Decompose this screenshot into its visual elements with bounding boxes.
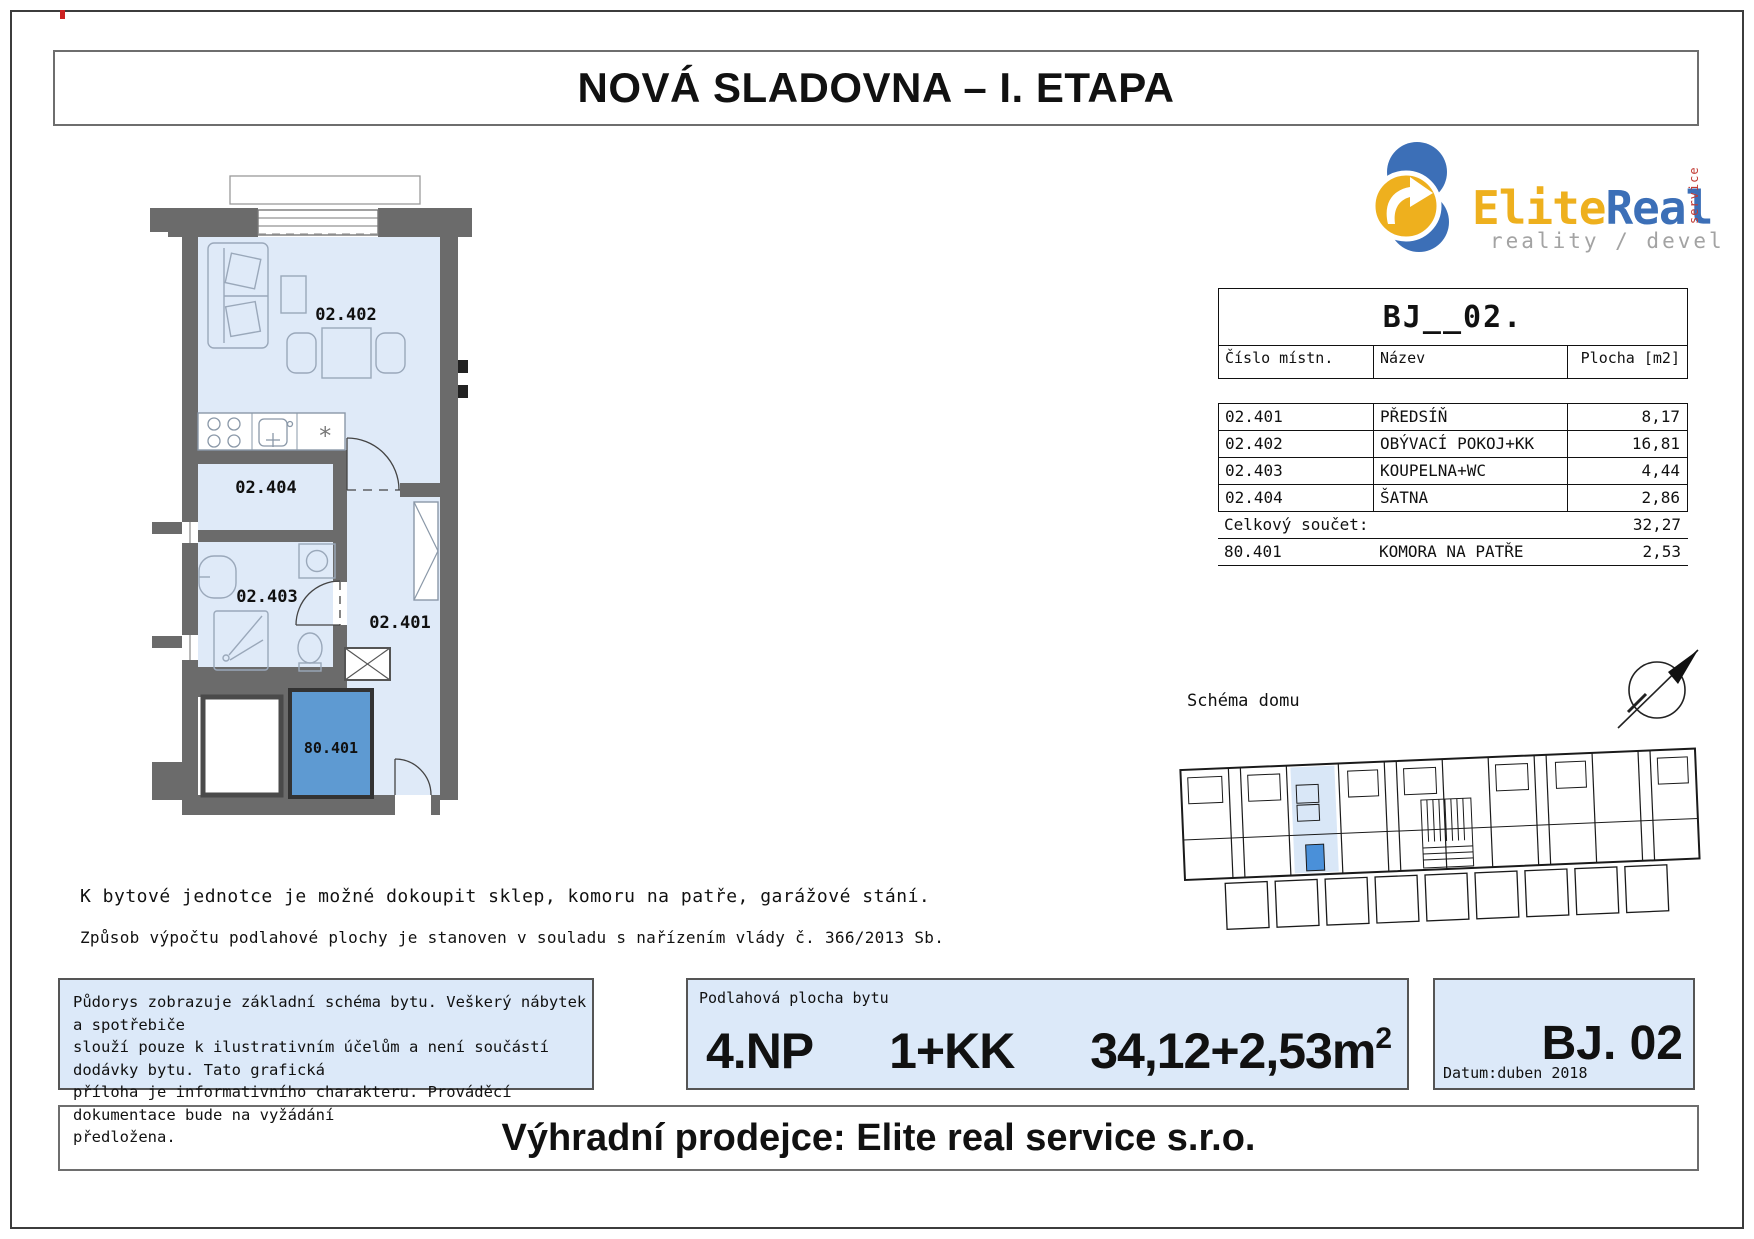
room-name: PŘEDSÍŇ — [1374, 404, 1568, 430]
disclaimer-line: Půdorys zobrazuje základní schéma bytu. … — [73, 991, 592, 1036]
summary-label: Podlahová plocha bytu — [699, 989, 889, 1007]
table-row: 02.404 ŠATNA 2,86 — [1218, 485, 1688, 512]
room-area: 2,86 — [1568, 485, 1687, 511]
room-number: 02.401 — [1219, 404, 1374, 430]
print-mark — [60, 10, 65, 19]
table-row: 02.401 PŘEDSÍŇ 8,17 — [1218, 404, 1688, 431]
logo-word-elite: Elite — [1472, 181, 1605, 235]
page-title-box: NOVÁ SLADOVNA – I. ETAPA — [53, 50, 1699, 126]
table-total-row: Celkový součet: 32,27 — [1218, 512, 1688, 539]
col-name: Název — [1374, 346, 1568, 378]
property-sheet: NOVÁ SLADOVNA – I. ETAPA EliteReal servi… — [0, 0, 1754, 1239]
highlighted-storage — [1306, 844, 1325, 871]
room-number: 80.401 — [1218, 539, 1373, 565]
logo-tagline: reality / developer — [1490, 229, 1720, 253]
layout-value: 1+KK — [889, 1026, 1014, 1076]
note-regulation: Způsob výpočtu podlahové plochy je stano… — [80, 928, 944, 947]
room-area: 4,44 — [1568, 458, 1687, 484]
room-label-hall: 02.401 — [369, 613, 430, 633]
disclaimer-line: slouží pouze k ilustrativním účelům a ne… — [73, 1036, 592, 1081]
unit-table-header: Číslo místn. Název Plocha [m2] — [1218, 346, 1688, 379]
kitchen-counter: * — [198, 413, 345, 450]
room-area: 16,81 — [1568, 431, 1687, 457]
room-number: 02.402 — [1219, 431, 1374, 457]
room-name: OBÝVACÍ POKOJ+KK — [1374, 431, 1568, 457]
room-name: KOUPELNA+WC — [1374, 458, 1568, 484]
unit-table-title: BJ__02. — [1218, 288, 1688, 346]
summary-box: Podlahová plocha bytu 4.NP 1+KK 34,12+2,… — [686, 978, 1409, 1090]
table-row: 02.403 KOUPELNA+WC 4,44 — [1218, 458, 1688, 485]
room-number: 02.403 — [1219, 458, 1374, 484]
footer-banner-text: Výhradní prodejce: Elite real service s.… — [501, 1117, 1255, 1160]
room-name: KOMORA NA PATŘE — [1373, 539, 1569, 565]
footer-banner: Výhradní prodejce: Elite real service s.… — [58, 1105, 1699, 1171]
disclaimer-box: Půdorys zobrazuje základní schéma bytu. … — [58, 978, 594, 1090]
neighbor-storage-room — [203, 697, 281, 795]
unit-badge-box: BJ. 02 Datum:duben 2018 — [1433, 978, 1695, 1090]
total-label: Celkový součet: — [1218, 512, 1369, 538]
note-addons: K bytové jednotce je možné dokoupit skle… — [80, 886, 930, 907]
logo-circle-yellow — [1373, 173, 1439, 239]
compass-icon — [1612, 640, 1712, 740]
col-number: Číslo místn. — [1219, 346, 1374, 378]
shaft-box — [345, 648, 390, 680]
room-label-storage: 80.401 — [304, 739, 358, 757]
table-extra-row: 80.401 KOMORA NA PATŘE 2,53 — [1218, 539, 1688, 566]
apartment-floor-plan: * — [140, 160, 485, 840]
room-label-closet: 02.404 — [235, 478, 296, 498]
room-label-living: 02.402 — [315, 305, 376, 325]
col-area: Plocha [m2] — [1568, 346, 1687, 378]
unit-room-table: BJ__02. Číslo místn. Název Plocha [m2] 0… — [1218, 288, 1688, 566]
elitereal-logo: EliteReal service reality / developer — [1360, 136, 1720, 261]
room-area: 8,17 — [1568, 404, 1687, 430]
building-schema — [1170, 700, 1740, 980]
total-value: 32,27 — [1569, 512, 1688, 538]
date-line: Datum:duben 2018 — [1443, 1064, 1588, 1082]
wardrobe — [414, 502, 438, 600]
page-title: NOVÁ SLADOVNA – I. ETAPA — [578, 64, 1175, 112]
logo-wordmark: EliteReal — [1472, 181, 1712, 235]
room-area: 2,53 — [1569, 539, 1688, 565]
room-name: ŠATNA — [1374, 485, 1568, 511]
unit-table-body: 02.401 PŘEDSÍŇ 8,17 02.402 OBÝVACÍ POKOJ… — [1218, 403, 1688, 512]
area-value: 34,12+2,53m2 — [1090, 1026, 1391, 1076]
unit-id: BJ. 02 — [1542, 1020, 1683, 1068]
summary-values: 4.NP 1+KK 34,12+2,53m2 — [706, 1026, 1391, 1076]
table-row: 02.402 OBÝVACÍ POKOJ+KK 16,81 — [1218, 431, 1688, 458]
appliance-mark: * — [318, 422, 332, 450]
room-number: 02.404 — [1219, 485, 1374, 511]
elitereal-logo-mark — [1373, 142, 1449, 252]
floor-value: 4.NP — [706, 1026, 813, 1076]
room-label-bath: 02.403 — [236, 587, 297, 607]
logo-word-service: service — [1687, 166, 1701, 224]
